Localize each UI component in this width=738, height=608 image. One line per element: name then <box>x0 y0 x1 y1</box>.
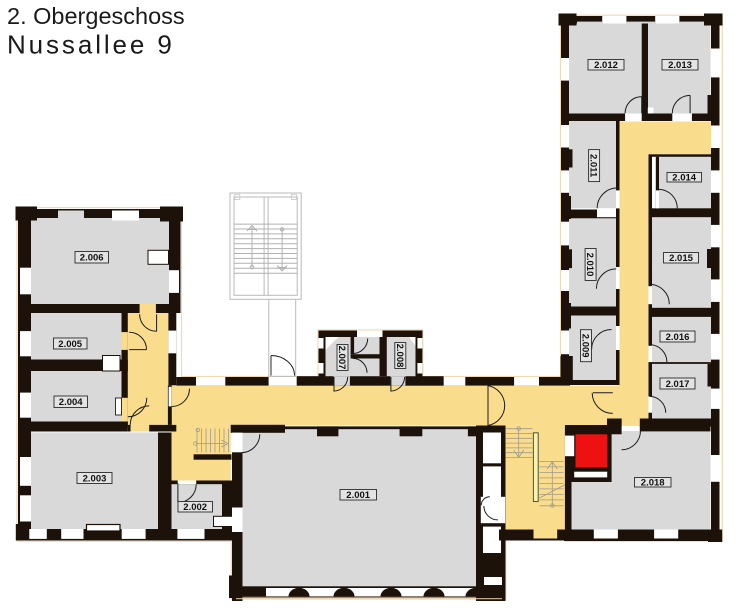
svg-text:2.002: 2.002 <box>183 502 207 513</box>
svg-text:Nussallee 9: Nussallee 9 <box>7 30 175 60</box>
svg-text:2.015: 2.015 <box>669 253 693 264</box>
svg-text:2.005: 2.005 <box>58 339 82 350</box>
svg-text:2. Obergeschoss: 2. Obergeschoss <box>7 3 185 29</box>
svg-text:2.018: 2.018 <box>641 478 665 489</box>
svg-text:2.016: 2.016 <box>666 332 690 343</box>
svg-text:2.003: 2.003 <box>83 473 107 484</box>
svg-text:2.017: 2.017 <box>666 379 690 390</box>
svg-text:2.007: 2.007 <box>336 346 347 370</box>
svg-text:2.010: 2.010 <box>584 253 595 277</box>
svg-text:2.008: 2.008 <box>394 344 405 368</box>
svg-text:2.004: 2.004 <box>59 397 83 408</box>
svg-text:2.013: 2.013 <box>668 60 692 71</box>
svg-text:2.009: 2.009 <box>580 334 591 358</box>
svg-text:2.012: 2.012 <box>594 60 618 71</box>
svg-text:2.014: 2.014 <box>672 173 696 184</box>
svg-text:2.011: 2.011 <box>588 154 599 178</box>
svg-text:2.001: 2.001 <box>346 490 370 501</box>
svg-text:2.006: 2.006 <box>80 253 104 264</box>
